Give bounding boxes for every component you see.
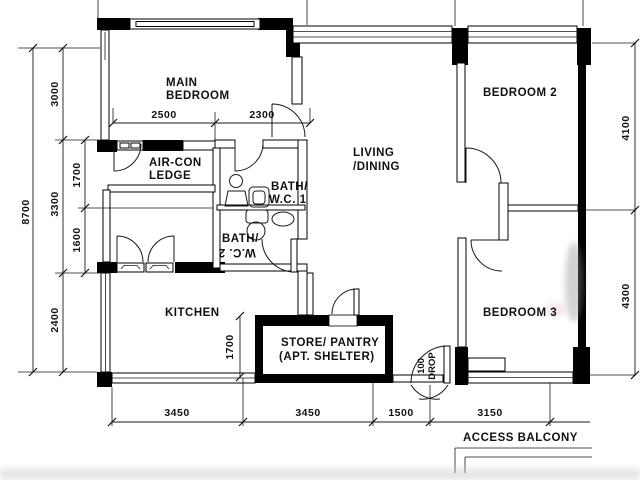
label-bedroom3: BEDROOM 3 xyxy=(483,307,557,319)
wall-bath-east-lower xyxy=(298,271,307,315)
floor-plan-drawing: MAIN BEDROOM AIR-CON LEDGE BATH/ W.C. 1 … xyxy=(0,0,640,480)
store-interior xyxy=(263,326,385,374)
dim-left-2400: 2400 xyxy=(49,307,61,332)
label-bath2-line1: BATH/ xyxy=(222,233,259,245)
dim-bottom-1500: 1500 xyxy=(388,407,413,419)
wall-mainbed-east xyxy=(292,57,302,104)
dim-left-1600: 1600 xyxy=(71,227,83,252)
label-main-bedroom-line1: MAIN xyxy=(166,77,197,89)
floor-plan-page: MAIN BEDROOM AIR-CON LEDGE BATH/ W.C. 1 … xyxy=(0,0,640,480)
label-entrance-drop-line1: 100 xyxy=(416,358,427,374)
label-bath2-line2: W.C. 2 xyxy=(218,246,256,258)
label-store-line1: STORE/ PANTRY xyxy=(281,337,379,349)
dim-left-1700: 1700 xyxy=(71,162,83,187)
dim-bottom-3450a: 3450 xyxy=(164,407,189,419)
window-band-living xyxy=(293,26,452,43)
label-bedroom2: BEDROOM 2 xyxy=(483,87,557,99)
wall-column xyxy=(97,262,117,273)
label-bath1-line2: W.C. 1 xyxy=(269,194,307,206)
door-bath2-leaf xyxy=(291,239,297,272)
store-door-threshold xyxy=(329,315,357,326)
louvre-hatch-slat xyxy=(131,143,140,148)
wall-door-stub xyxy=(499,183,508,240)
label-entrance-drop-line2: DROP xyxy=(427,352,438,380)
door-entrance-leaf xyxy=(444,346,450,383)
dim-bottom-3150: 3150 xyxy=(477,407,502,419)
wall-service-west xyxy=(103,190,110,262)
wall-column xyxy=(455,347,468,385)
wall-column xyxy=(97,18,130,30)
scan-edge-shadow xyxy=(0,468,640,480)
wall-column xyxy=(97,372,112,387)
wall-column xyxy=(258,18,293,30)
label-kitchen: KITCHEN xyxy=(165,307,220,319)
label-store-line2: (APT. SHELTER) xyxy=(279,351,375,363)
dim-bottom-3450b: 3450 xyxy=(295,407,320,419)
smudge-artifact xyxy=(565,242,583,322)
dim-left-3000: 3000 xyxy=(49,81,61,106)
dim-right-4100: 4100 xyxy=(620,115,632,140)
wall-column xyxy=(573,347,590,384)
door-store-leaf xyxy=(354,289,359,315)
label-aircon-line2: LEDGE xyxy=(149,170,191,182)
label-living-line1: LIVING xyxy=(353,147,394,159)
sill-bedroom3 xyxy=(468,358,505,371)
dim-left-total: 8700 xyxy=(20,199,32,224)
label-main-bedroom-line2: BEDROOM xyxy=(166,90,230,102)
wall-segment xyxy=(143,140,183,151)
label-aircon-line1: AIR-CON xyxy=(149,157,202,169)
label-bath1-line1: BATH/ xyxy=(271,181,308,193)
wall-bedroom2-west xyxy=(457,63,465,182)
wall-aircon-south xyxy=(108,185,215,192)
service-door-threshold xyxy=(146,263,173,272)
wall-mainbed-south xyxy=(183,141,215,150)
dim-right-4300: 4300 xyxy=(620,283,632,308)
wall-column xyxy=(577,28,591,65)
dim-left-3300: 3300 xyxy=(49,191,61,216)
label-access-balcony: ACCESS BALCONY xyxy=(463,432,578,444)
label-living-line2: /DINING xyxy=(353,161,400,173)
dim-top-2500: 2500 xyxy=(151,109,176,121)
window-band-bedroom2 xyxy=(468,26,577,43)
service-door-threshold xyxy=(117,263,144,272)
window-main-bedroom-inner xyxy=(136,22,254,27)
wall-column xyxy=(452,28,468,65)
louvre-hatch-slat xyxy=(120,143,129,148)
wall-bed2-bed3-divider xyxy=(508,205,578,211)
wall-bath1-top-left xyxy=(215,140,235,148)
dim-top-2300: 2300 xyxy=(249,109,274,121)
wall-kitchen-east xyxy=(307,273,313,315)
dim-store-1700: 1700 xyxy=(224,334,236,359)
wall-bedroom3-west xyxy=(458,238,466,347)
